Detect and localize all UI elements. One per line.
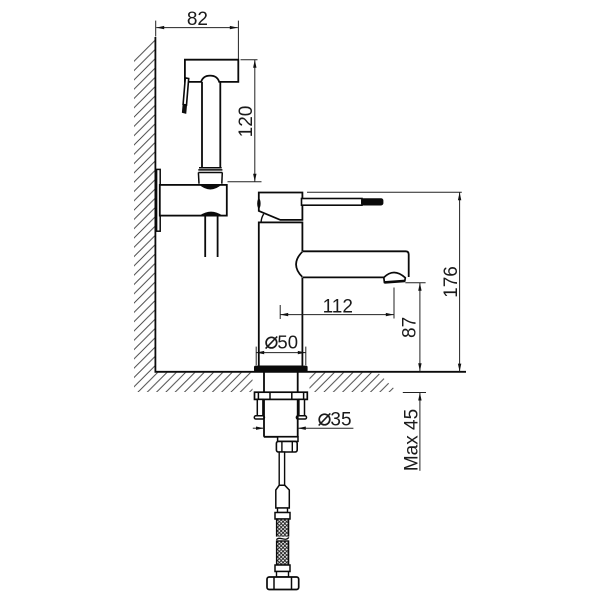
svg-text:35: 35 (330, 410, 351, 431)
svg-text:Max 45: Max 45 (402, 409, 423, 471)
svg-text:112: 112 (323, 296, 353, 317)
svg-text:50: 50 (277, 332, 298, 353)
svg-text:120: 120 (236, 106, 257, 138)
svg-text:87: 87 (399, 317, 420, 338)
svg-text:82: 82 (187, 9, 208, 30)
svg-text:176: 176 (441, 266, 462, 298)
